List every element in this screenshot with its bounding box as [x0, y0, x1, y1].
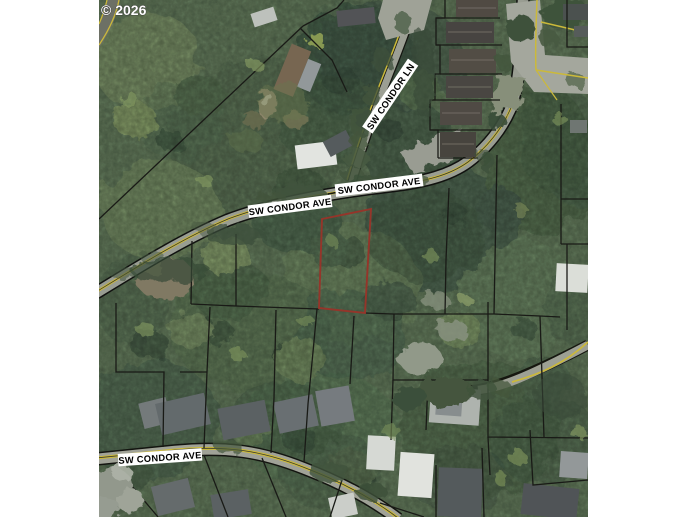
svg-text:© 2026: © 2026 — [101, 2, 147, 18]
